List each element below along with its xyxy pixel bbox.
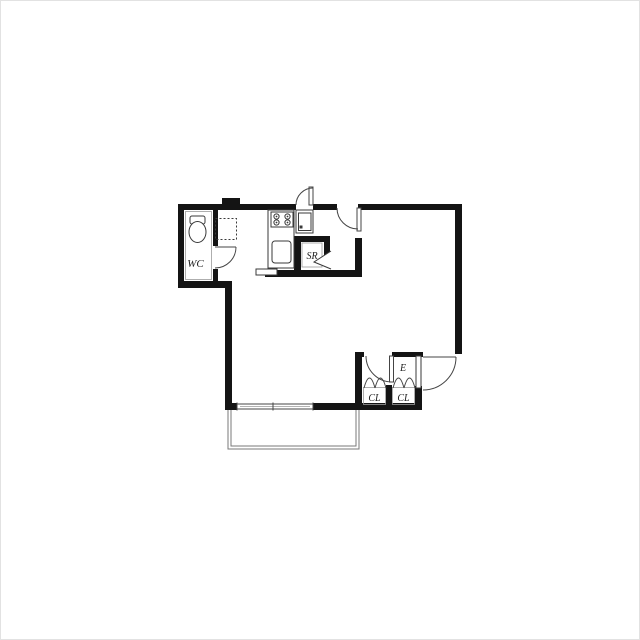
wall-bottom-right-segment (313, 403, 422, 410)
wall-kitchen-right-stub (355, 238, 362, 277)
wall-kitchen-bottom (265, 270, 362, 277)
bifold-leaf (393, 378, 404, 388)
wc-door (215, 247, 236, 268)
room-label-closet-left: CL (368, 393, 381, 404)
floor-plan-drawing: WC SR E CL CL (0, 0, 640, 640)
stove-burner-dot (287, 216, 289, 218)
stove-outline (271, 212, 293, 227)
doors (215, 187, 456, 390)
wall-entrance-left (355, 352, 362, 410)
wall-wc-right-lower (213, 269, 218, 283)
bifold-leaf (404, 378, 415, 388)
top-exterior-door-leaf (309, 187, 313, 205)
kitchen-counter (256, 210, 294, 275)
stove-burners-icon (271, 212, 293, 227)
wall-right (455, 204, 462, 354)
top-exterior-door (296, 187, 313, 205)
wall-main-left (225, 281, 232, 410)
front-door (423, 357, 456, 390)
refrigerator-space-dashed-icon (216, 219, 237, 240)
balcony-outer-rail (228, 410, 359, 449)
stove-burner-dot (276, 216, 278, 218)
entrance-inner-door-leaf (390, 356, 394, 382)
entrance-side-panel (416, 356, 421, 388)
wall-closet-right (415, 386, 422, 410)
wall-wc-left (178, 204, 184, 288)
kitchen-room-door (337, 208, 361, 231)
room-label-entrance: E (399, 363, 406, 374)
wall-bottom-left-segment (225, 403, 237, 410)
wall-wc-bottom (178, 281, 227, 288)
sliding-window-icon (237, 403, 313, 411)
counter-end-panel (256, 269, 277, 275)
balcony-rail-icon (228, 410, 359, 449)
kitchen-room-door-arc swing-door-arc-icon (337, 208, 358, 229)
wall-top-middle-segment (313, 204, 337, 210)
wall-closet-divider (386, 385, 392, 410)
wall-wc-top (178, 204, 227, 210)
wall-top-left-segment (226, 204, 296, 210)
room-label-sr: SR (306, 251, 317, 262)
stove-burner-dot (276, 222, 278, 224)
floor-plan-canvas: WC SR E CL CL (0, 0, 640, 640)
wall-top-right-segment (358, 204, 462, 210)
toilet-icon (189, 216, 206, 243)
kitchen-room-door-leaf (357, 208, 361, 231)
room-label-wc: WC (187, 258, 204, 270)
wall-sr-left (294, 236, 301, 277)
kitchen-sink-icon (272, 241, 291, 263)
washer-tap-dot (300, 226, 303, 229)
stove-burner-dot (287, 222, 289, 224)
room-label-closet-right: CL (397, 393, 410, 404)
toilet-bowl (189, 222, 206, 243)
washing-machine-icon (296, 210, 313, 233)
wc-door-arc swing-door-arc-icon (215, 247, 236, 268)
bifold-leaf (364, 378, 375, 388)
balcony-inner-rail (231, 410, 356, 446)
front-door-arc swing-door-arc-icon (423, 357, 456, 390)
